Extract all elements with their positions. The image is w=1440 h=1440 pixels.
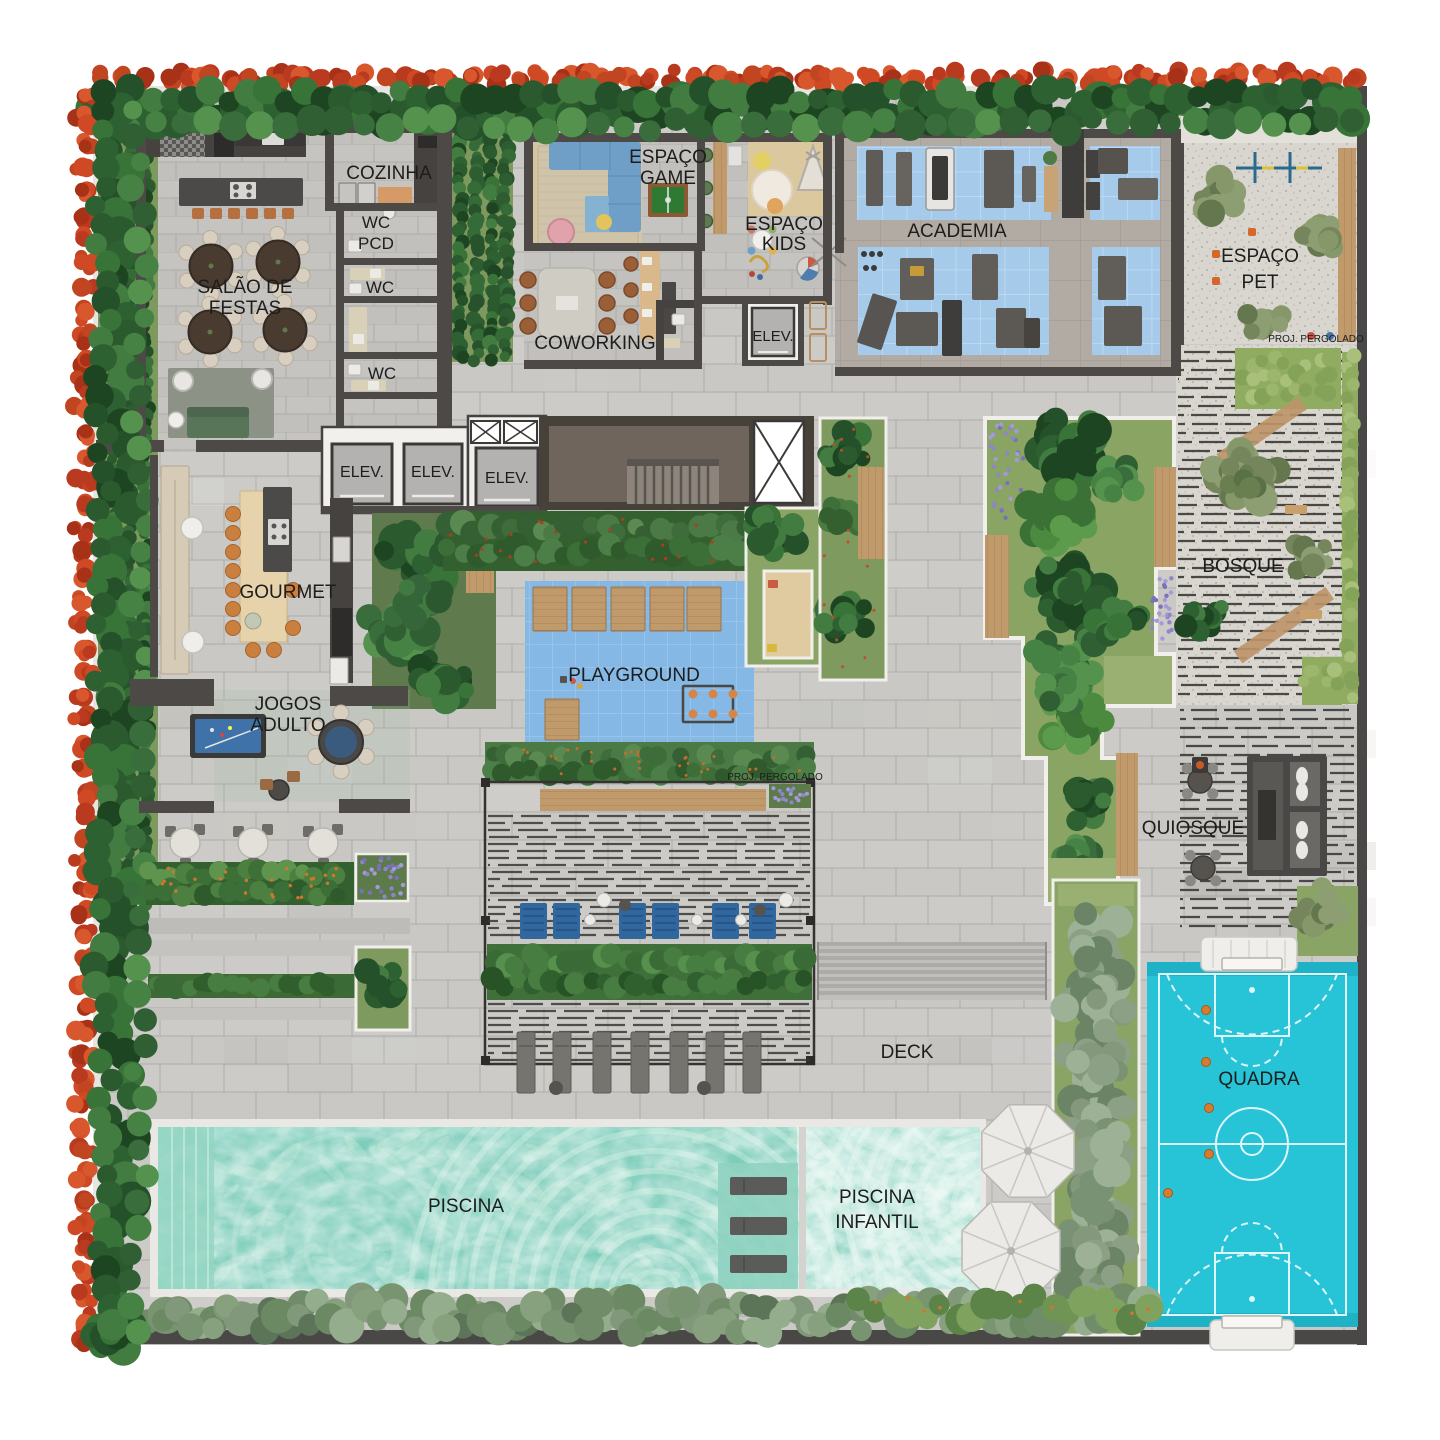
svg-text:ESPAÇO: ESPAÇO xyxy=(629,147,707,168)
svg-text:PROJ. PERGOLADO: PROJ. PERGOLADO xyxy=(1268,334,1364,345)
svg-text:ELEV.: ELEV. xyxy=(340,464,384,481)
svg-text:GOURMET: GOURMET xyxy=(239,582,337,603)
svg-text:PET: PET xyxy=(1242,272,1279,293)
svg-text:QUIOSQUE: QUIOSQUE xyxy=(1142,818,1244,839)
svg-text:ELEV.: ELEV. xyxy=(411,464,455,481)
svg-text:WC: WC xyxy=(368,364,396,383)
svg-text:ELEV.: ELEV. xyxy=(485,470,529,487)
svg-text:WC: WC xyxy=(362,213,390,232)
svg-text:DECK: DECK xyxy=(881,1042,934,1063)
svg-text:GAME: GAME xyxy=(640,168,696,189)
svg-text:ESPAÇO: ESPAÇO xyxy=(1221,246,1299,267)
svg-text:ESPAÇO: ESPAÇO xyxy=(745,214,823,235)
svg-text:ELEV.: ELEV. xyxy=(752,328,793,345)
svg-text:ACADEMIA: ACADEMIA xyxy=(907,221,1007,242)
svg-text:PISCINA: PISCINA xyxy=(839,1187,915,1208)
svg-text:COWORKING: COWORKING xyxy=(534,333,655,354)
svg-text:PLAYGROUND: PLAYGROUND xyxy=(568,665,700,686)
svg-text:JOGOS: JOGOS xyxy=(255,694,322,715)
svg-text:SALÃO DE: SALÃO DE xyxy=(197,276,292,298)
svg-text:INFANTIL: INFANTIL xyxy=(835,1212,918,1233)
svg-text:FESTAS: FESTAS xyxy=(209,298,282,319)
svg-text:ADULTO: ADULTO xyxy=(250,715,325,736)
svg-text:BOSQUE: BOSQUE xyxy=(1202,556,1283,577)
svg-text:PCD: PCD xyxy=(358,234,394,253)
svg-text:WC: WC xyxy=(366,278,394,297)
svg-text:QUADRA: QUADRA xyxy=(1218,1069,1300,1090)
svg-text:PROJ. PERGOLADO: PROJ. PERGOLADO xyxy=(727,772,823,783)
svg-text:COZINHA: COZINHA xyxy=(346,163,432,184)
svg-text:KIDS: KIDS xyxy=(762,234,806,255)
svg-text:PISCINA: PISCINA xyxy=(428,1196,504,1217)
